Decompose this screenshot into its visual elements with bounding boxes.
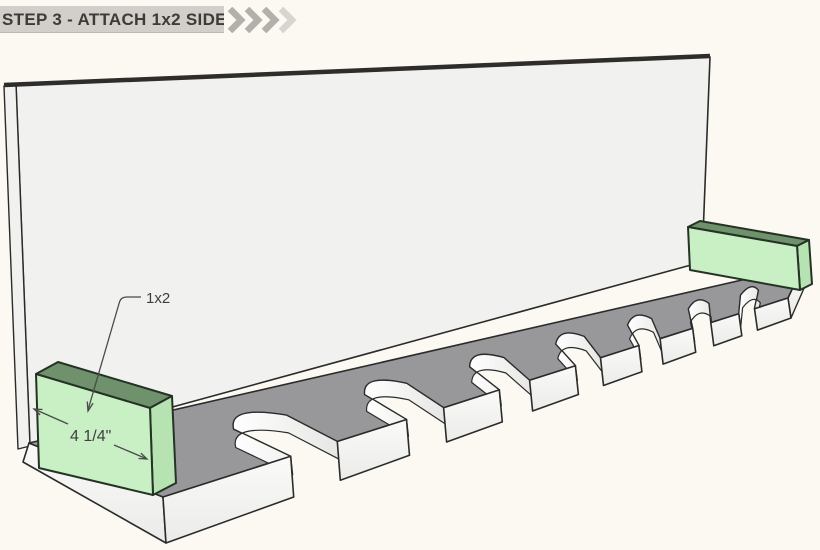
- right-1x2-side: [688, 221, 812, 290]
- diagram-stage: 1x2 4 1/4" STEP 3 - ATTACH 1x2 SIDES: [0, 0, 820, 550]
- step-banner-label: STEP 3 - ATTACH 1x2 SIDES: [2, 10, 224, 29]
- part-label: 1x2: [146, 290, 170, 307]
- chevron-light: [281, 9, 292, 31]
- green-end-face: [150, 396, 176, 495]
- dimension-label: 4 1/4": [70, 428, 111, 445]
- chevron: [264, 9, 275, 31]
- chevrons-icon: [227, 7, 307, 33]
- chevron: [247, 9, 258, 31]
- step-banner: STEP 3 - ATTACH 1x2 SIDES: [0, 6, 224, 33]
- assembly-diagram: 1x2 4 1/4": [0, 0, 820, 550]
- chevron: [230, 9, 241, 31]
